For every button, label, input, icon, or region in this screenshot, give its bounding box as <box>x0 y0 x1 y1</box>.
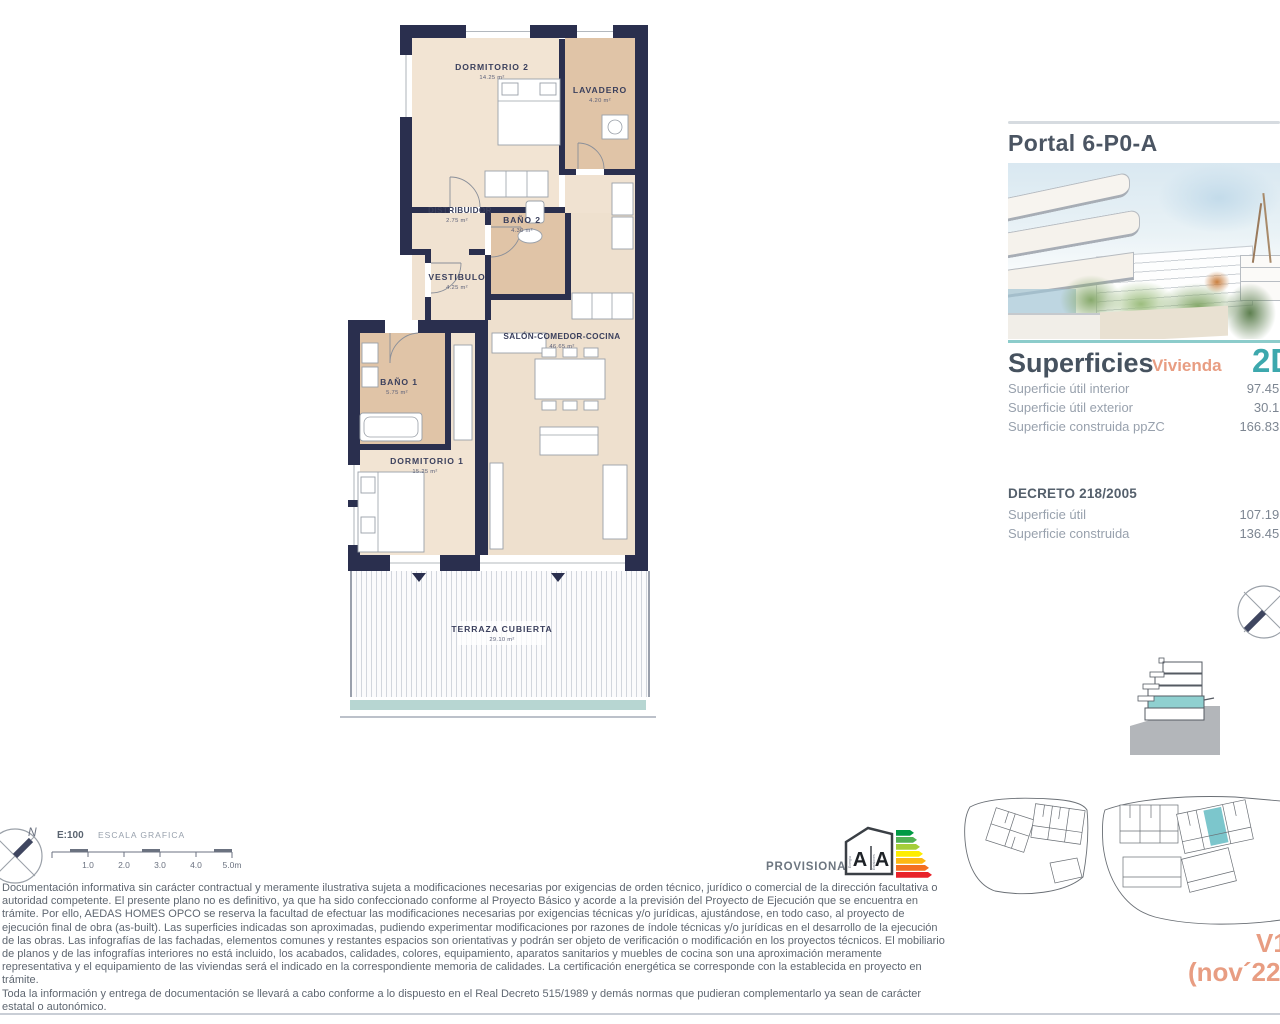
room-area-lavadero: 4.20 m² <box>589 98 611 104</box>
building-watercolor-image <box>1008 163 1280 339</box>
decreto-title: DECRETO 218/2005 <box>1008 486 1137 501</box>
room-label-terraza: TERRAZA CUBIERTA <box>451 624 552 634</box>
row-value: 136.45 m² <box>1239 526 1280 545</box>
room-area-dormitorio-2: 14.25 m² <box>479 75 504 81</box>
legal-disclaimer: Documentación informativa sin carácter c… <box>2 882 950 1014</box>
room-label-vestibulo: VESTIBULO <box>428 272 485 282</box>
vivienda-label: Vivienda <box>1152 356 1222 376</box>
row-label: Superficie útil exterior <box>1008 400 1133 419</box>
row-value: 30.1 m² <box>1254 400 1280 419</box>
north-label: N <box>28 825 37 839</box>
site-plan <box>955 785 1280 935</box>
room-area-distribuidor: 2.75 m² <box>446 218 468 224</box>
energy-letter-left: A <box>853 849 867 871</box>
room-area-bano-2: 4.30 m² <box>511 228 533 234</box>
building-section-diagram <box>1118 650 1228 762</box>
compass-icon <box>1232 583 1280 643</box>
panel-top-rule <box>1008 121 1280 124</box>
room-label-salon: SALÓN-COMEDOR-COCINA <box>503 330 620 341</box>
plan-version: V1 <box>1256 928 1280 959</box>
decreto-row: Superficie útil 107.19 m² <box>1008 507 1280 526</box>
floor-plan: DORMITORIO 2 14.25 m² LAVADERO 4.20 m² D… <box>330 15 660 725</box>
room-label-dormitorio-1: DORMITORIO 1 <box>390 456 464 466</box>
plan-date: (nov´22) <box>1188 957 1280 988</box>
room-label-bano-2: BAÑO 2 <box>503 215 541 225</box>
vivienda-type: 2D <box>1252 342 1280 380</box>
energy-letter-right: A <box>875 849 889 871</box>
energy-word-left: Energía <box>848 856 852 868</box>
room-label-distribuidor: DISTRIBUIDOR <box>428 206 492 215</box>
scale-tick: 4.0 <box>190 860 202 870</box>
superficies-row: Superficie útil exterior 30.1 m² <box>1008 400 1280 419</box>
energy-word-right: Emisiones <box>872 854 876 870</box>
energy-rating-icon: A A Energía Emisiones <box>838 820 938 882</box>
decreto-row: Superficie construida 136.45 m² <box>1008 526 1280 545</box>
scale-tick: 3.0 <box>154 860 166 870</box>
room-label-dormitorio-2: DORMITORIO 2 <box>455 62 529 72</box>
scale-label: ESCALA GRAFICA <box>98 830 185 840</box>
row-label: Superficie construida <box>1008 526 1129 545</box>
room-label-bano-1: BAÑO 1 <box>380 377 418 387</box>
room-area-dormitorio-1: 15.25 m² <box>412 469 437 475</box>
row-value: 97.45 m² <box>1247 381 1280 400</box>
row-label: Superficie útil <box>1008 507 1086 526</box>
disclaimer-paragraph-1: Documentación informativa sin carácter c… <box>2 882 950 988</box>
room-area-vestibulo: 4.25 m² <box>446 285 468 291</box>
room-area-terraza: 29.10 m² <box>489 637 514 643</box>
room-area-bano-1: 5.75 m² <box>386 390 408 396</box>
room-label-lavadero: LAVADERO <box>573 85 627 95</box>
scale-tick: 1.0 <box>82 860 94 870</box>
row-label: Superficie construida ppZC <box>1008 419 1165 438</box>
row-label: Superficie útil interior <box>1008 381 1129 400</box>
superficies-title: Superficies <box>1008 348 1154 379</box>
scale-bar: E:100 ESCALA GRAFICA 1.0 2.0 3.0 4.0 5.0… <box>50 826 250 872</box>
room-area-salon: 46.65 m² <box>549 344 574 350</box>
superficies-row: Superficie construida ppZC 166.83 m² <box>1008 419 1280 438</box>
teal-divider <box>1008 340 1280 343</box>
scale-ratio: E:100 <box>57 830 84 841</box>
row-value: 107.19 m² <box>1239 507 1280 526</box>
portal-title: Portal 6-P0-A <box>1008 130 1158 157</box>
scale-tick: 2.0 <box>118 860 130 870</box>
scale-tick: 5.0m <box>223 860 242 870</box>
disclaimer-paragraph-2: Toda la información y entrega de documen… <box>2 988 950 1014</box>
superficies-row: Superficie útil interior 97.45 m² <box>1008 381 1280 400</box>
bottom-rule <box>0 1013 1280 1015</box>
north-arrow-icon: N <box>0 824 50 886</box>
row-value: 166.83 m² <box>1239 419 1280 438</box>
